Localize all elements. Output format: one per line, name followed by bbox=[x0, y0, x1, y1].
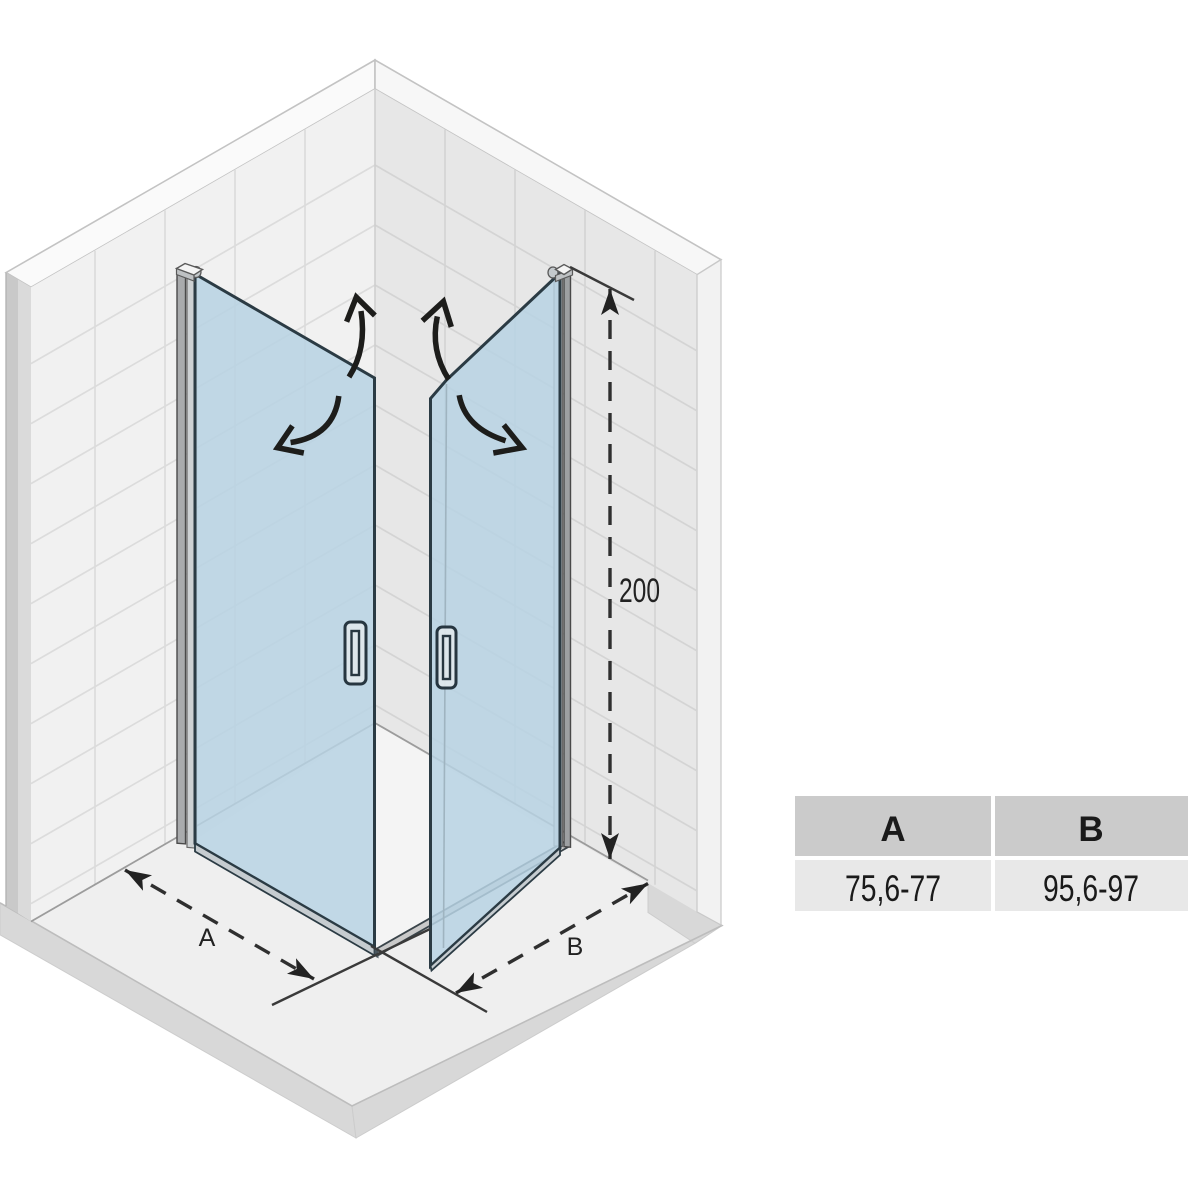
svg-text:A: A bbox=[199, 924, 216, 952]
svg-text:75,6-77: 75,6-77 bbox=[845, 868, 941, 909]
svg-text:95,6-97: 95,6-97 bbox=[1043, 868, 1139, 909]
svg-text:B: B bbox=[1078, 810, 1103, 849]
svg-text:A: A bbox=[880, 810, 905, 849]
svg-text:B: B bbox=[567, 933, 584, 961]
svg-text:200: 200 bbox=[619, 572, 660, 610]
